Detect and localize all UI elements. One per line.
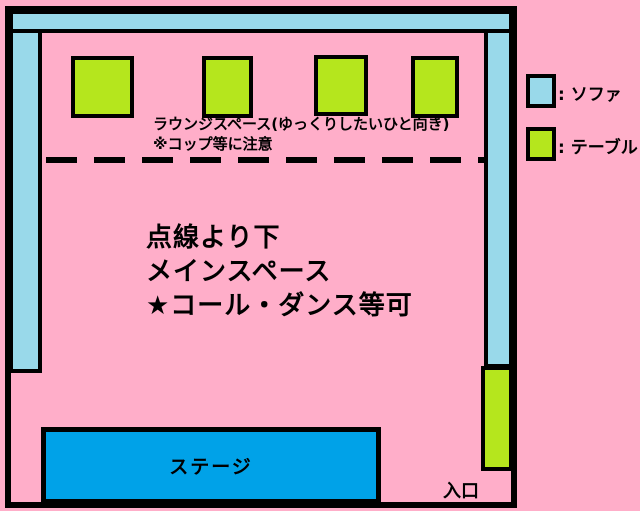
- legend-table-swatch: [526, 127, 556, 161]
- floor-plan: ラウンジスペース(ゆっくりしたいひと向き) ※コップ等に注意 点線より下 メイン…: [0, 0, 640, 511]
- lounge-table-4: [411, 56, 459, 118]
- stage: ステージ: [41, 427, 381, 504]
- lounge-note-line2: ※コップ等に注意: [153, 134, 449, 154]
- lounge-note: ラウンジスペース(ゆっくりしたいひと向き) ※コップ等に注意: [153, 114, 449, 154]
- entrance-label: 入口: [443, 477, 479, 503]
- side-table: [481, 366, 513, 471]
- lounge-table-3: [314, 55, 368, 116]
- legend-sofa-swatch: [526, 74, 556, 108]
- legend-table-label: : テーブル: [558, 133, 638, 158]
- sofa-top: [9, 10, 513, 33]
- sofa-right: [484, 29, 513, 368]
- stage-label: ステージ: [169, 452, 253, 479]
- main-space-line2: メインスペース: [146, 255, 413, 289]
- main-space-line1: 点線より下: [146, 221, 413, 255]
- main-space-note: 点線より下 メインスペース ★コール・ダンス等可: [146, 221, 413, 323]
- lounge-table-1: [71, 56, 134, 118]
- dashed-divider: [46, 157, 487, 163]
- lounge-note-line1: ラウンジスペース(ゆっくりしたいひと向き): [153, 114, 449, 134]
- legend-sofa-label: : ソファ: [558, 80, 622, 105]
- sofa-left: [9, 29, 42, 373]
- lounge-table-2: [202, 56, 253, 118]
- main-space-line3: ★コール・ダンス等可: [146, 289, 413, 323]
